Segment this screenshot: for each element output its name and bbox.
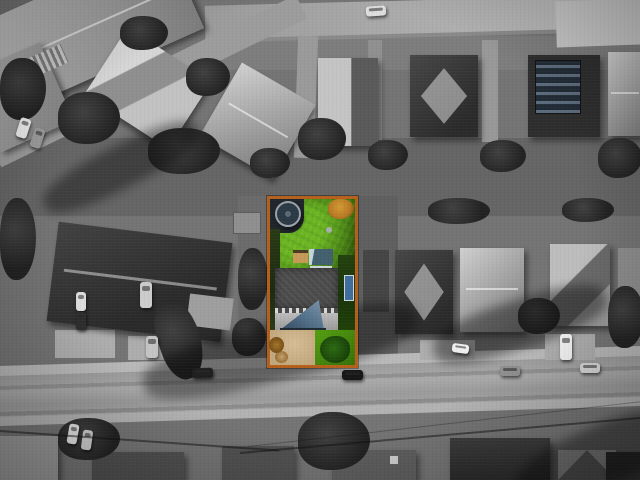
- shed: [233, 212, 261, 234]
- house-roof-solar: [528, 55, 600, 137]
- blue-tarp: [344, 275, 354, 301]
- car-parked-street: [500, 366, 520, 376]
- hedge: [562, 198, 614, 222]
- driveway-gap-3: [482, 40, 498, 142]
- solar-panels: [536, 61, 580, 113]
- van: [560, 334, 572, 360]
- tree: [0, 198, 36, 280]
- car: [76, 312, 86, 330]
- tree: [58, 92, 120, 144]
- house-roof: [410, 55, 478, 137]
- car-parked-street: [342, 370, 363, 380]
- car: [366, 5, 387, 16]
- driveway-apron: [55, 330, 115, 358]
- van: [146, 336, 158, 358]
- car: [76, 292, 86, 311]
- car-parked-street: [192, 368, 213, 379]
- main-house-roof: [275, 268, 338, 308]
- car-parked-street: [580, 363, 600, 373]
- highlighted-property-lot: [267, 196, 358, 368]
- house-roof: [608, 52, 640, 136]
- aerial-photo: [0, 0, 640, 480]
- van: [140, 282, 152, 308]
- tree: [598, 138, 640, 178]
- rear-porch-roof: [309, 249, 333, 265]
- front-bush: [320, 336, 350, 363]
- pavement-top-right: [555, 0, 640, 47]
- house-roof-bottom-left: [0, 436, 58, 480]
- garden-shed: [293, 250, 308, 263]
- fall-shrub: [275, 351, 288, 363]
- tree: [186, 58, 230, 96]
- hedge: [428, 198, 490, 224]
- trampoline: [275, 201, 301, 227]
- garden-table: [326, 227, 332, 233]
- tree: [608, 286, 640, 348]
